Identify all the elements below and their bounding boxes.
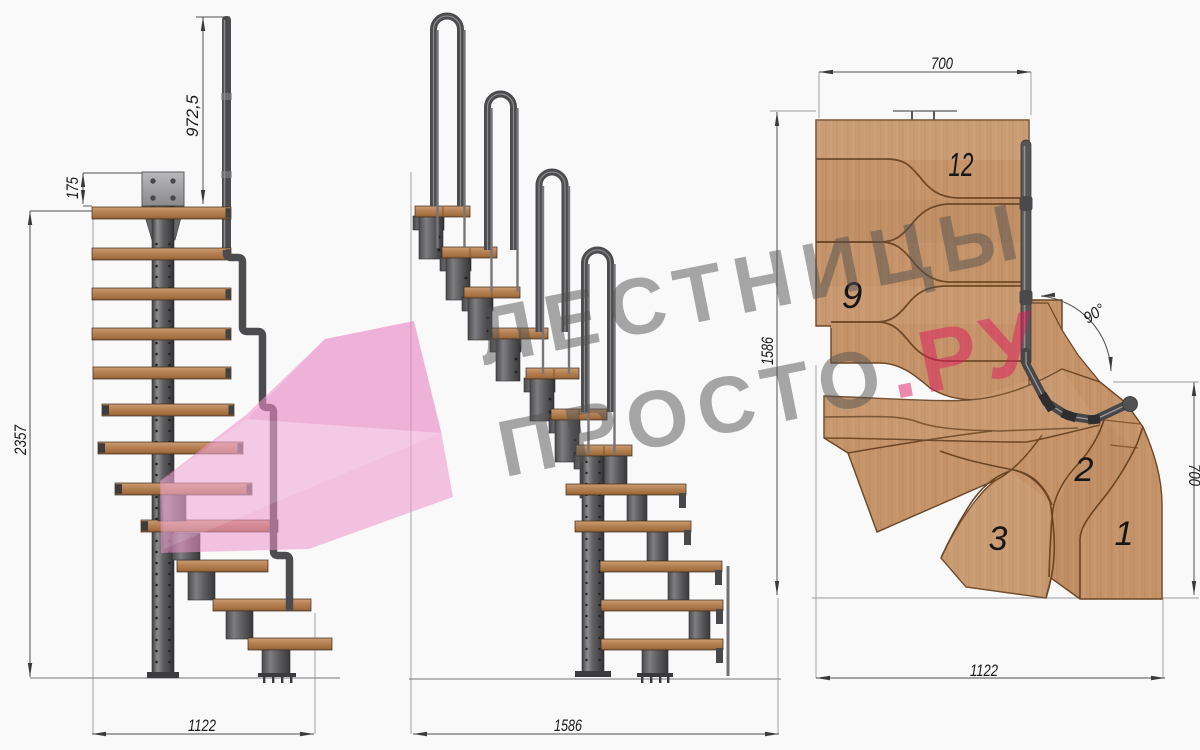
svg-text:1: 1: [1115, 515, 1134, 553]
svg-text:1122: 1122: [188, 716, 216, 735]
svg-text:2357: 2357: [11, 425, 30, 456]
svg-text:175: 175: [63, 177, 82, 199]
svg-text:1122: 1122: [970, 661, 998, 680]
svg-text:90°: 90°: [1081, 301, 1109, 328]
svg-text:2: 2: [1074, 451, 1094, 489]
svg-text:700: 700: [931, 54, 953, 73]
svg-text:12: 12: [949, 146, 974, 183]
svg-text:3: 3: [989, 520, 1008, 558]
svg-text:700: 700: [1185, 464, 1200, 486]
svg-text:1586: 1586: [554, 716, 582, 735]
svg-text:972,5: 972,5: [183, 94, 202, 137]
